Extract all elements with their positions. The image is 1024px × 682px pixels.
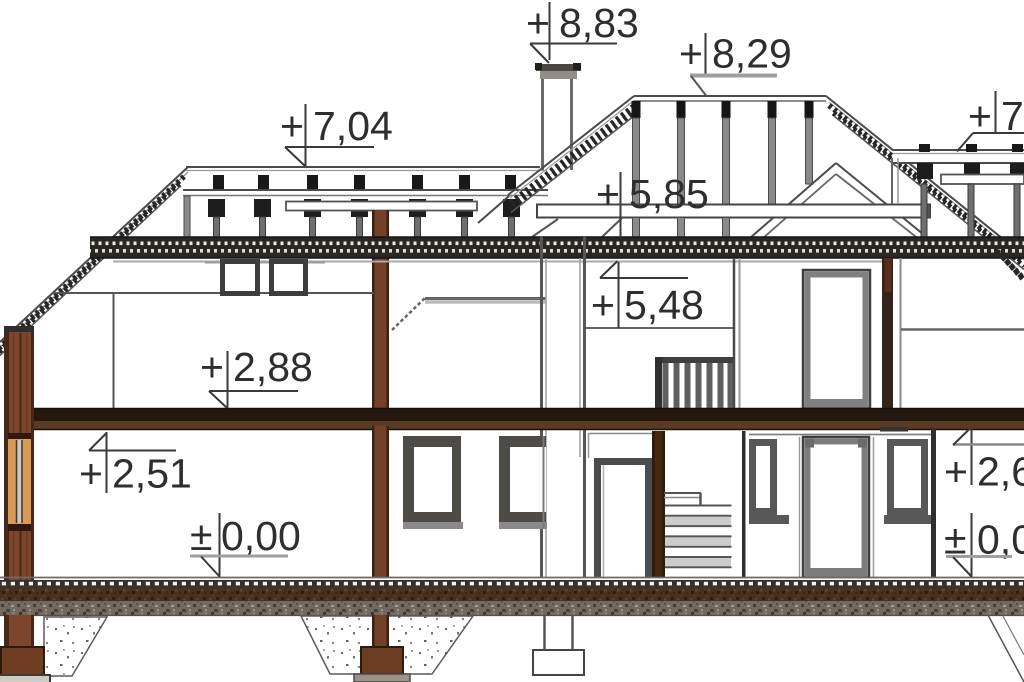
svg-text:2,51: 2,51	[112, 451, 192, 497]
svg-text:2,88: 2,88	[233, 344, 313, 390]
svg-text:+: +	[944, 449, 968, 495]
svg-text:2,6: 2,6	[977, 449, 1024, 495]
svg-text:8,83: 8,83	[559, 0, 639, 46]
svg-text:7,04: 7,04	[313, 103, 393, 149]
svg-text:+: +	[526, 0, 550, 46]
svg-text:5,48: 5,48	[624, 282, 704, 328]
svg-text:±: ±	[190, 513, 213, 559]
svg-text:+: +	[596, 171, 620, 217]
svg-text:+: +	[200, 344, 224, 390]
svg-text:+: +	[591, 282, 615, 328]
svg-text:0,00: 0,00	[221, 513, 301, 559]
svg-text:+: +	[280, 103, 304, 149]
svg-text:+: +	[79, 451, 103, 497]
svg-text:+: +	[679, 31, 703, 77]
svg-text:5,85: 5,85	[629, 171, 709, 217]
svg-text:8,29: 8,29	[712, 31, 792, 77]
